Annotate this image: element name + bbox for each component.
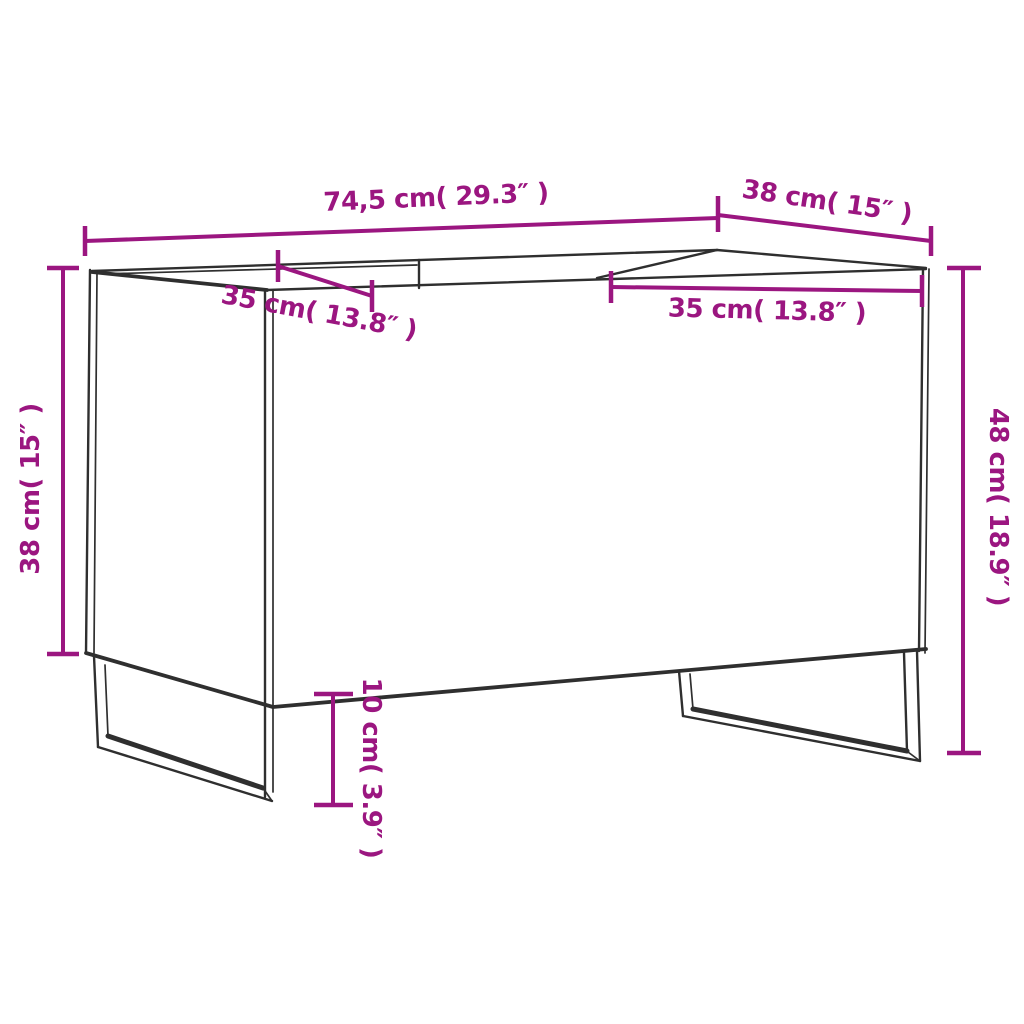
dim-compartment-left-line <box>278 266 372 296</box>
furniture-dimension-diagram: 74,5 cm( 29.3″ ) 38 cm( 15″ ) 35 cm( 13.… <box>0 0 1024 1024</box>
cabinet-outline <box>86 250 929 801</box>
left-leg-inner-bottom-bar <box>108 736 263 788</box>
cabinet-front-left-corner <box>265 290 273 797</box>
right-leg-outer-bottom-bar <box>683 716 920 761</box>
left-leg-inner-left-bar <box>105 665 108 736</box>
right-leg-inner-right-bar <box>904 653 907 751</box>
dim-compartment-left-label: 35 cm( 13.8″ ) <box>219 280 420 346</box>
cabinet-left-side-panel <box>86 270 273 707</box>
right-leg-inner-bottom-bar <box>693 709 907 751</box>
left-leg <box>94 656 272 801</box>
dim-leg-height-label: 10 cm( 3.9″ ) <box>356 678 386 859</box>
dim-compartment-right-line <box>611 287 922 291</box>
right-leg-outer-right-bar <box>917 651 920 761</box>
right-leg-inner-left-bar <box>690 674 693 709</box>
dim-width-line <box>85 218 718 241</box>
dim-depth: 38 cm( 15″ ) <box>718 174 931 256</box>
left-back-edge-outer <box>86 270 90 653</box>
dim-width: 74,5 cm( 29.3″ ) <box>85 178 718 256</box>
dim-width-label: 74,5 cm( 29.3″ ) <box>323 178 549 218</box>
right-edge-outer <box>919 269 923 651</box>
left-back-edge-inner <box>94 272 97 653</box>
right-leg-outer-left-bar <box>679 671 683 716</box>
dim-overall-height-label: 48 cm( 18.9″ ) <box>983 408 1013 606</box>
left-leg-outer-left-bar <box>94 656 98 747</box>
dim-side-height: 38 cm( 15″ ) <box>16 268 79 654</box>
top-front-edge <box>267 269 926 290</box>
cabinet-top-rim <box>92 250 926 290</box>
top-right-side-edge <box>717 250 926 268</box>
right-edge-inner <box>925 269 929 653</box>
dim-compartment-right: 35 cm( 13.8″ ) <box>611 271 922 329</box>
dim-compartment-right-label: 35 cm( 13.8″ ) <box>667 293 866 328</box>
dim-side-height-label: 38 cm( 15″ ) <box>16 403 46 574</box>
left-side-bottom-edge <box>86 653 273 707</box>
left-leg-outer-bottom-bar <box>98 747 272 801</box>
dim-leg-height: 10 cm( 3.9″ ) <box>314 678 386 859</box>
dim-overall-height: 48 cm( 18.9″ ) <box>947 268 1013 753</box>
top-back-edge <box>92 250 717 271</box>
diagram-page: 74,5 cm( 29.3″ ) 38 cm( 15″ ) 35 cm( 13.… <box>0 0 1024 1024</box>
